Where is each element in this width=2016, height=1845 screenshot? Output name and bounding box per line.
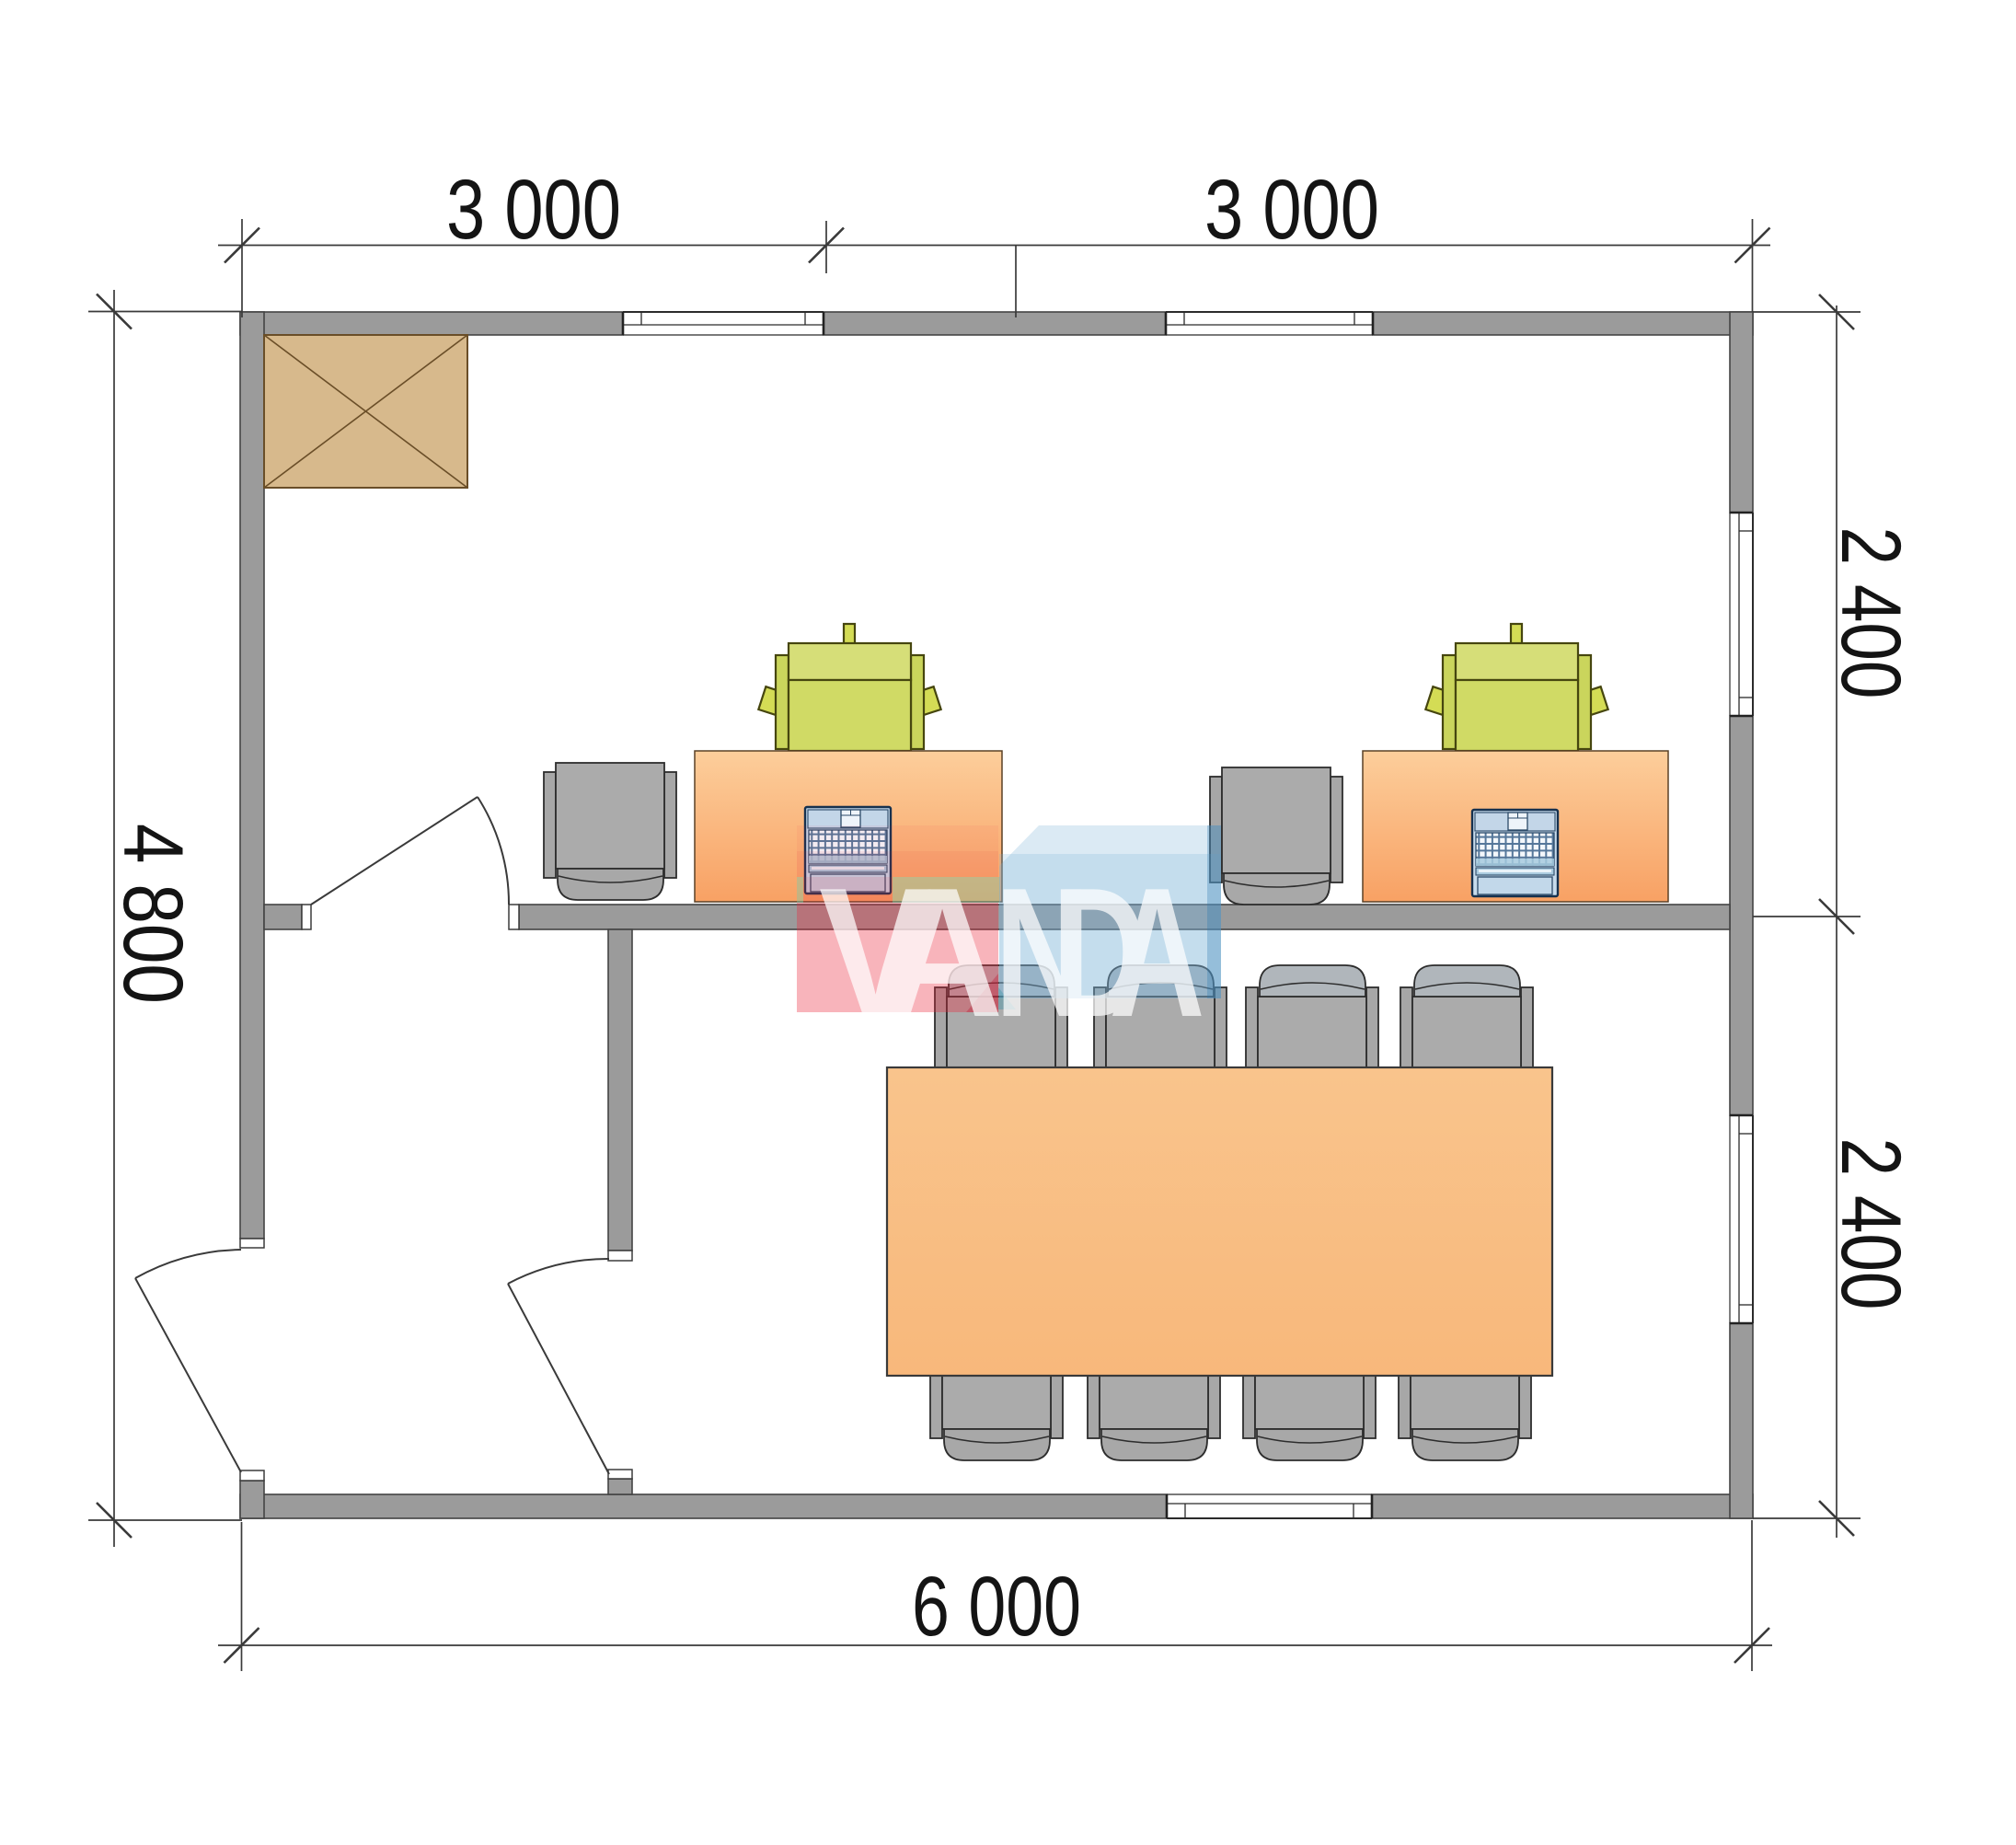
svg-text:4 800: 4 800 — [106, 824, 200, 1004]
svg-text:2 400: 2 400 — [1824, 1138, 1918, 1310]
svg-text:3 000: 3 000 — [446, 163, 621, 257]
svg-text:6 000: 6 000 — [912, 1560, 1081, 1654]
svg-text:3 000: 3 000 — [1204, 163, 1379, 257]
svg-text:2 400: 2 400 — [1824, 527, 1918, 699]
